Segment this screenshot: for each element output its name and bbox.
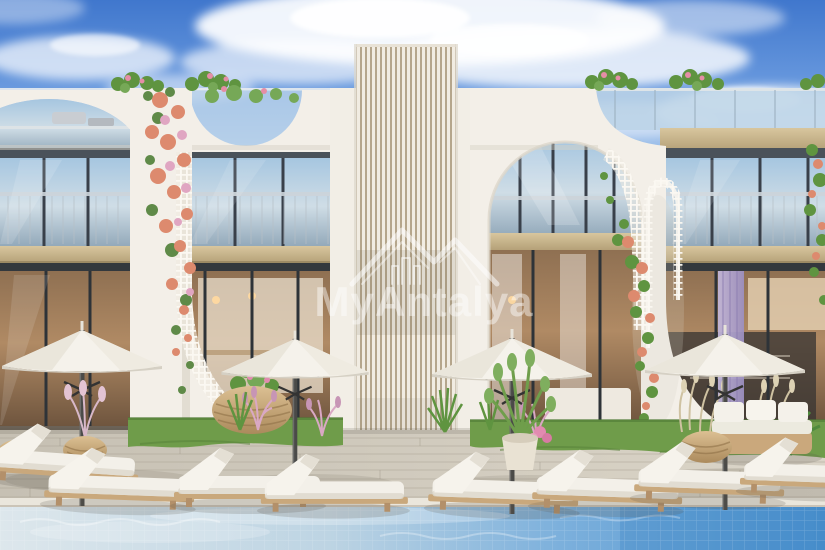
tower-louvers [354, 44, 458, 440]
rendering-canvas: MyAntalya [0, 0, 825, 550]
pool-resort-rendering: MyAntalya [0, 0, 825, 550]
watermark-text: MyAntalya [314, 278, 533, 325]
